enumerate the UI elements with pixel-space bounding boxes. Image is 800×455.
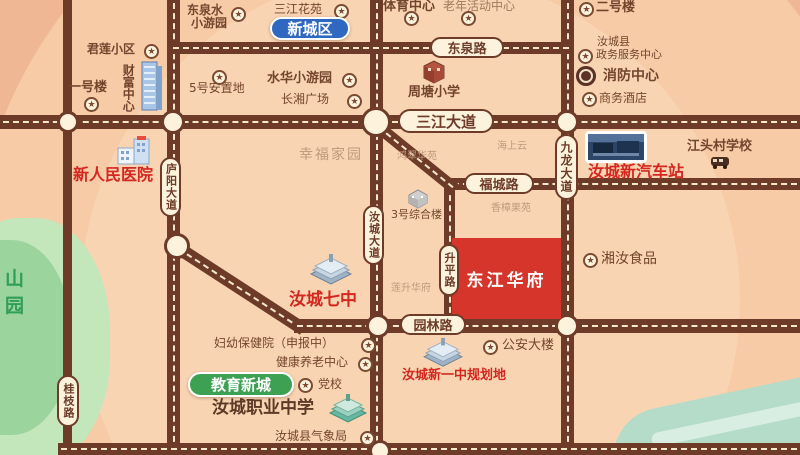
green-school-building-icon: [327, 393, 369, 425]
star-marker-icon: ★: [483, 340, 498, 355]
poi-dangxiao: 党校: [318, 378, 342, 391]
poi-shuihua: 水华小游园: [267, 72, 332, 86]
star-marker-icon: ★: [361, 338, 376, 353]
location-map: 山 园 东江华府 东泉路 三江大道 福城路 园林路 庐阳大道 汝城大道 九龙大道…: [0, 0, 800, 455]
road-pill-luyang: 庐阳大道: [160, 157, 181, 217]
poi-yihaolou: 一号楼: [68, 81, 107, 95]
poi-xinrenmin: 新人民医院: [73, 166, 153, 184]
star-marker-icon: ★: [583, 253, 598, 268]
road-pill-fucheng: 福城路: [464, 173, 534, 194]
intersection-node: [161, 110, 185, 134]
poi-fuyou: 妇幼保健院（申报中）: [214, 337, 334, 350]
school-building-icon: [420, 58, 448, 86]
star-marker-icon: ★: [360, 431, 375, 446]
star-marker-icon: ★: [404, 11, 419, 26]
poi-qichezhan: 汝城新汽车站: [588, 163, 684, 181]
bus-icon: [710, 156, 730, 169]
park-label-char2: 园: [5, 291, 24, 318]
intersection-node: [366, 314, 390, 338]
road-pill-rucheng: 汝城大道: [363, 205, 384, 265]
star-marker-icon: ★: [578, 49, 593, 64]
poi-hongcui: 鸿翠华苑: [397, 151, 437, 162]
poi-erhaolou: 二号楼: [596, 1, 635, 15]
intersection-node: [57, 111, 79, 133]
fire-station-icon: [576, 66, 596, 86]
poi-dongquanshui-line2: 小游园: [191, 17, 227, 30]
poi-zhiye: 汝城职业中学: [212, 399, 314, 418]
poi-qizhong: 汝城七中: [289, 291, 357, 310]
star-marker-icon: ★: [144, 44, 159, 59]
road-pill-guizhi: 桂枝路: [57, 375, 79, 427]
poi-shangwu: 商务酒店: [599, 92, 647, 105]
road-dongquan: [170, 42, 572, 54]
bus-station-photo: [585, 131, 647, 163]
star-marker-icon: ★: [579, 2, 594, 17]
park-label-char1: 山: [5, 264, 24, 291]
star-marker-icon: ★: [342, 73, 357, 88]
poi-xinyizhong: 汝城新一中规划地: [402, 369, 506, 383]
star-marker-icon: ★: [347, 94, 362, 109]
poi-haishangyun: 海上云: [497, 141, 527, 152]
star-marker-icon: ★: [298, 378, 313, 393]
flat-school-building-icon: [307, 252, 355, 288]
poi-zhengwu-line2: 政务服务中心: [596, 49, 662, 61]
intersection-node: [555, 110, 579, 134]
road-pill-jiulong: 九龙大道: [555, 134, 578, 200]
intersection-node: [164, 233, 190, 259]
star-marker-icon: ★: [582, 92, 597, 107]
poi-xiangzhang: 香樟果苑: [491, 203, 531, 214]
poi-junlian: 君莲小区: [87, 43, 135, 56]
star-marker-icon: ★: [461, 11, 476, 26]
property-block-dongjianghuafu: 东江华府: [452, 238, 561, 319]
poi-xiangru: 湘汝食品: [601, 252, 657, 267]
hospital-building-icon: [116, 134, 156, 166]
road-pill-dongquan: 东泉路: [430, 37, 504, 58]
star-marker-icon: ★: [84, 97, 99, 112]
property-label: 东江华府: [467, 266, 547, 291]
road-bottom: [58, 443, 800, 455]
road-pill-sanjiang: 三江大道: [398, 109, 494, 133]
poi-qixiang: 汝城县气象局: [275, 430, 347, 443]
tower-building-icon: [139, 60, 165, 112]
star-marker-icon: ★: [358, 357, 373, 372]
road-luyang: [167, 0, 180, 455]
grey-building-icon: [405, 188, 431, 210]
poi-xiaofang: 消防中心: [603, 69, 659, 84]
poi-gongan: 公安大楼: [502, 339, 554, 353]
poi-zhoutang: 周塘小学: [408, 86, 460, 100]
poi-xingfu: 幸福家园: [299, 148, 363, 163]
road-jiulong: [561, 0, 574, 455]
poi-sanhao: 3号综合楼: [391, 209, 442, 221]
poi-liansheng: 莲升华府: [391, 283, 431, 294]
poi-zhengwu-line1: 汝城县: [597, 36, 630, 48]
badge-new-city: 新城区: [270, 17, 350, 40]
badge-edu-city: 教育新城: [188, 372, 294, 397]
poi-jiankang: 健康养老中心: [276, 356, 348, 369]
poi-jiangtou: 江头村学校: [687, 140, 752, 154]
intersection-node: [361, 107, 391, 137]
flat-school-building-icon: [420, 336, 466, 370]
poi-sanjiang-huayuan: 三江花苑: [274, 3, 322, 16]
road-pill-yuanlin: 园林路: [400, 314, 466, 335]
star-marker-icon: ★: [212, 70, 227, 85]
poi-changxiang: 长湘广场: [281, 93, 329, 106]
road-pill-shengping: 升平路: [439, 244, 459, 296]
star-marker-icon: ★: [231, 7, 246, 22]
poi-caifu: 财富中心: [121, 64, 134, 112]
poi-laonian: 老年活动中心: [443, 0, 515, 13]
